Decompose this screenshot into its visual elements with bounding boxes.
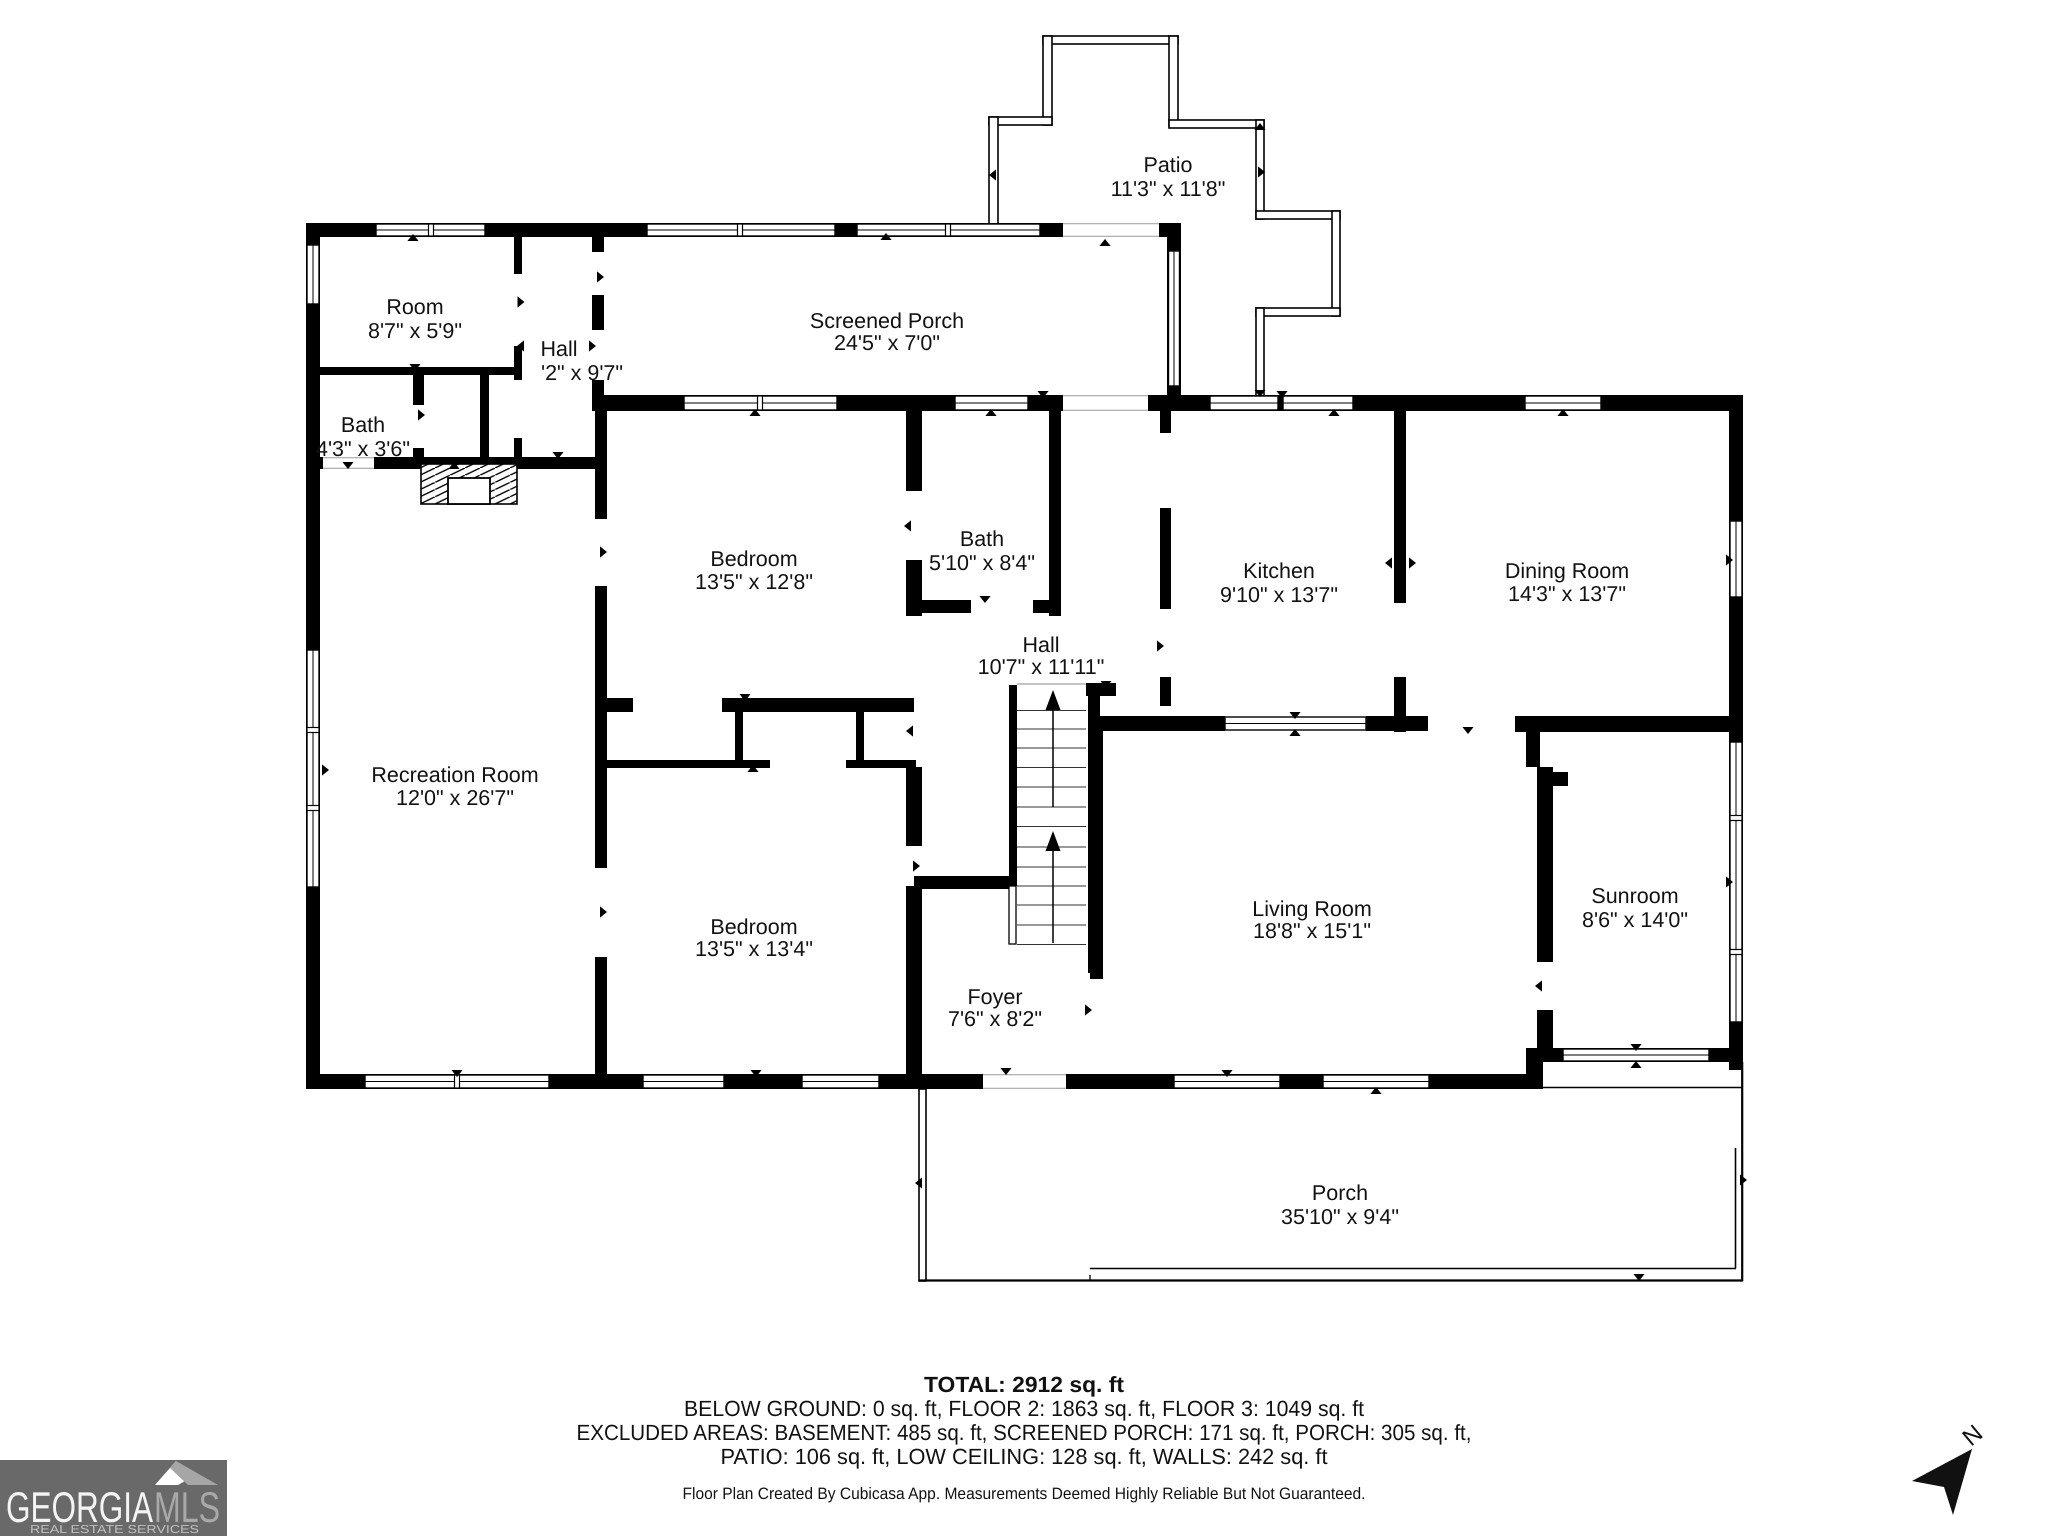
svg-text:11'3" x 11'8": 11'3" x 11'8" — [1111, 177, 1226, 201]
svg-text:Patio: Patio — [1143, 153, 1192, 177]
svg-text:7'6" x 8'2": 7'6" x 8'2" — [948, 1007, 1042, 1031]
svg-text:14'3" x 13'7": 14'3" x 13'7" — [1508, 582, 1626, 606]
svg-text:Sunroom: Sunroom — [1591, 884, 1678, 908]
svg-text:5'10" x 8'4": 5'10" x 8'4" — [929, 551, 1035, 575]
svg-text:Kitchen: Kitchen — [1243, 559, 1315, 583]
svg-text:Bedroom: Bedroom — [710, 547, 797, 571]
svg-text:Recreation Room: Recreation Room — [371, 763, 538, 787]
svg-text:Room: Room — [386, 295, 443, 319]
svg-text:9'10" x 13'7": 9'10" x 13'7" — [1220, 583, 1338, 607]
svg-text:8'7" x 5'9": 8'7" x 5'9" — [368, 319, 462, 343]
svg-text:Screened Porch: Screened Porch — [810, 309, 964, 333]
svg-text:13'5" x 13'4": 13'5" x 13'4" — [695, 937, 813, 961]
svg-text:4'3" x 3'6": 4'3" x 3'6" — [316, 437, 410, 461]
svg-text:18'8" x 15'1": 18'8" x 15'1" — [1253, 919, 1371, 943]
svg-text:TOTAL: 2912 sq. ft: TOTAL: 2912 sq. ft — [924, 1372, 1125, 1397]
svg-text:10'7" x 11'11": 10'7" x 11'11" — [978, 655, 1105, 679]
svg-text:Foyer: Foyer — [968, 985, 1023, 1009]
svg-text:13'5" x 12'8": 13'5" x 12'8" — [695, 570, 813, 594]
svg-text:BELOW GROUND: 0 sq. ft, FLOOR: BELOW GROUND: 0 sq. ft, FLOOR 2: 1863 sq… — [684, 1396, 1364, 1421]
svg-text:Living Room: Living Room — [1252, 897, 1372, 921]
svg-text:Hall: Hall — [1022, 633, 1059, 657]
svg-text:EXCLUDED AREAS: BASEMENT: 485: EXCLUDED AREAS: BASEMENT: 485 sq. ft, SC… — [577, 1420, 1472, 1445]
svg-text:8'6" x 14'0": 8'6" x 14'0" — [1582, 908, 1688, 932]
svg-text:Bedroom: Bedroom — [710, 915, 797, 939]
svg-text:24'5" x 7'0": 24'5" x 7'0" — [834, 331, 940, 355]
svg-text:35'10" x 9'4": 35'10" x 9'4" — [1281, 1205, 1399, 1229]
svg-text:Dining Room: Dining Room — [1505, 559, 1629, 583]
svg-text:Hall: Hall — [540, 337, 577, 361]
svg-text:Bath: Bath — [341, 413, 385, 437]
svg-text:'2" x 9'7": '2" x 9'7" — [541, 361, 623, 385]
svg-text:Bath: Bath — [960, 527, 1004, 551]
svg-text:Porch: Porch — [1312, 1181, 1368, 1205]
svg-text:REAL ESTATE SERVICES: REAL ESTATE SERVICES — [30, 1524, 199, 1536]
svg-text:Floor Plan Created By Cubicasa: Floor Plan Created By Cubicasa App. Meas… — [683, 1485, 1366, 1503]
svg-text:12'0" x 26'7": 12'0" x 26'7" — [396, 786, 514, 810]
svg-text:PATIO: 106 sq. ft, LOW CEILING: PATIO: 106 sq. ft, LOW CEILING: 128 sq. … — [721, 1444, 1328, 1469]
